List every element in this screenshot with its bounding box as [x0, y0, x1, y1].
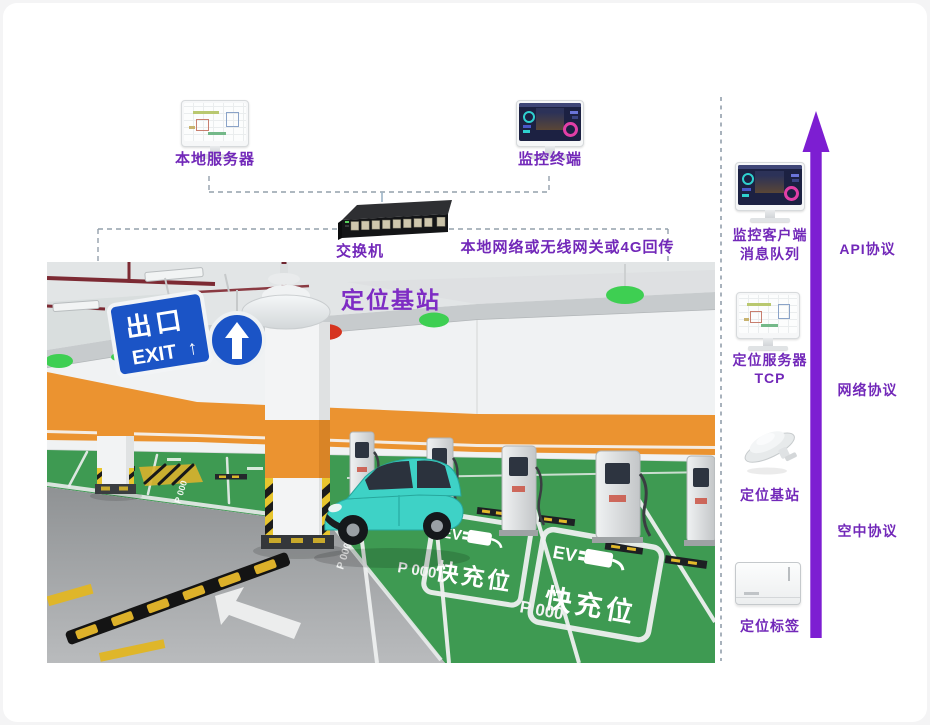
- charging-pile: [684, 456, 715, 546]
- protocol-label-api: API协议: [830, 241, 905, 257]
- sidebar-label-tcp: TCP: [715, 370, 825, 386]
- sidebar-label-base-station: 定位基站: [715, 487, 825, 503]
- local-server-label: 本地服务器: [150, 151, 280, 168]
- protocol-label-air: 空中协议: [830, 523, 905, 539]
- monitor-terminal: [516, 100, 584, 158]
- switch-label: 交换机: [300, 243, 420, 260]
- green-dome-light: [419, 313, 449, 328]
- monitor-frame: [516, 100, 584, 147]
- network-note-label: 本地网络或无线网关或4G回传: [455, 239, 680, 256]
- monitor-frame: [736, 292, 800, 339]
- sidebar-label-positioning-tag: 定位标签: [715, 618, 825, 634]
- sidebar-monitor-positioning-server: [736, 292, 800, 350]
- protocol-label-network: 网络协议: [830, 382, 905, 398]
- green-dome-light: [606, 286, 644, 304]
- sidebar-label-client-line1: 监控客户端: [715, 227, 825, 243]
- monitor-frame: [735, 162, 805, 211]
- architecture-diagram-page: 本地服务器 监控终端 交换机 本地网络或: [0, 0, 930, 725]
- photo-base-station-label: 定位基站: [341, 287, 441, 313]
- sidebar-base-station-device: [736, 414, 800, 476]
- sidebar-label-positioning-server: 定位服务器: [715, 352, 825, 368]
- ev-text: EV: [551, 542, 578, 566]
- dashboard-screen: [738, 165, 802, 205]
- floorplan-screen: [739, 295, 797, 333]
- sidebar-positioning-tag-device: [735, 562, 801, 605]
- dashboard-screen: [519, 103, 581, 141]
- floorplan-screen: [184, 103, 246, 141]
- monitor-frame: [181, 100, 249, 147]
- local-server-monitor: [181, 100, 249, 158]
- monitor-terminal-label: 监控终端: [485, 151, 615, 168]
- sidebar-monitor-client: [735, 162, 805, 222]
- network-switch: [334, 196, 454, 244]
- parking-garage-photo: P 000 P 000 EV 快充位: [47, 262, 715, 663]
- sidebar-label-client-line2: 消息队列: [715, 246, 825, 262]
